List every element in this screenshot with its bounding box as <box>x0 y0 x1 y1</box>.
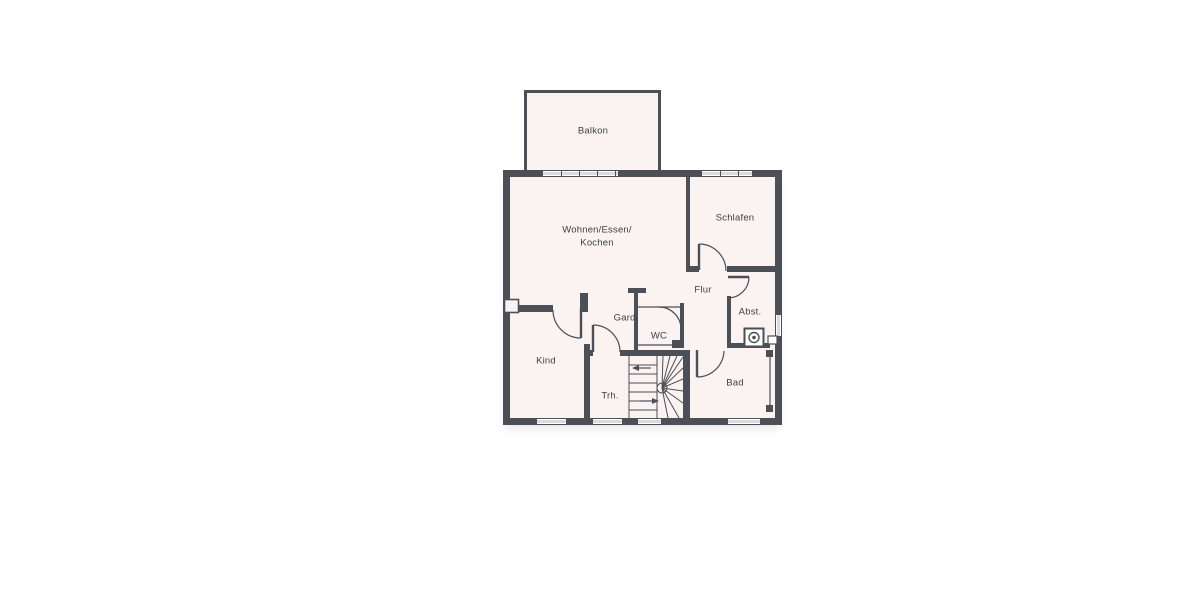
door-arc <box>553 310 581 338</box>
abst-window-sill <box>768 336 777 344</box>
door-schlafen <box>699 244 726 271</box>
door-arc <box>659 307 681 329</box>
door-trh <box>593 325 620 352</box>
door-wc <box>659 307 681 329</box>
wall-niche <box>505 300 519 313</box>
room-label-wohnen-2: Kochen <box>580 238 613 249</box>
door-arc <box>697 351 724 377</box>
door-kind <box>553 308 581 338</box>
door-abst <box>728 277 749 298</box>
room-label-abst: Abst. <box>739 307 762 318</box>
room-label-flur: Flur <box>694 285 711 296</box>
door-arc <box>699 244 726 271</box>
stair-arrow-right-icon <box>640 398 659 404</box>
stair-winder <box>662 368 683 388</box>
room-label-trh: Trh. <box>601 391 618 402</box>
door-arc <box>728 277 749 298</box>
room-label-kind: Kind <box>536 356 556 367</box>
room-label-balkon: Balkon <box>578 126 608 137</box>
arrow-head <box>652 398 659 404</box>
stair-arrow-left-icon <box>632 365 651 371</box>
door-bad <box>697 350 724 377</box>
floor-plan-canvas: Balkon Wohnen/Essen/ Kochen Schlafen Flu… <box>0 0 1200 600</box>
room-label-bad: Bad <box>726 378 744 389</box>
door-arc <box>593 325 620 352</box>
room-label-gard: Gard. <box>614 313 639 324</box>
plan-linework <box>0 0 1200 600</box>
staircase <box>629 356 683 418</box>
arrow-head <box>632 365 639 371</box>
washing-machine-door <box>752 336 756 340</box>
room-label-wc: WC <box>651 331 667 342</box>
room-label-wohnen-1: Wohnen/Essen/ <box>562 225 632 236</box>
room-label-schlafen: Schlafen <box>716 213 755 224</box>
washing-machine-icon <box>745 329 764 347</box>
